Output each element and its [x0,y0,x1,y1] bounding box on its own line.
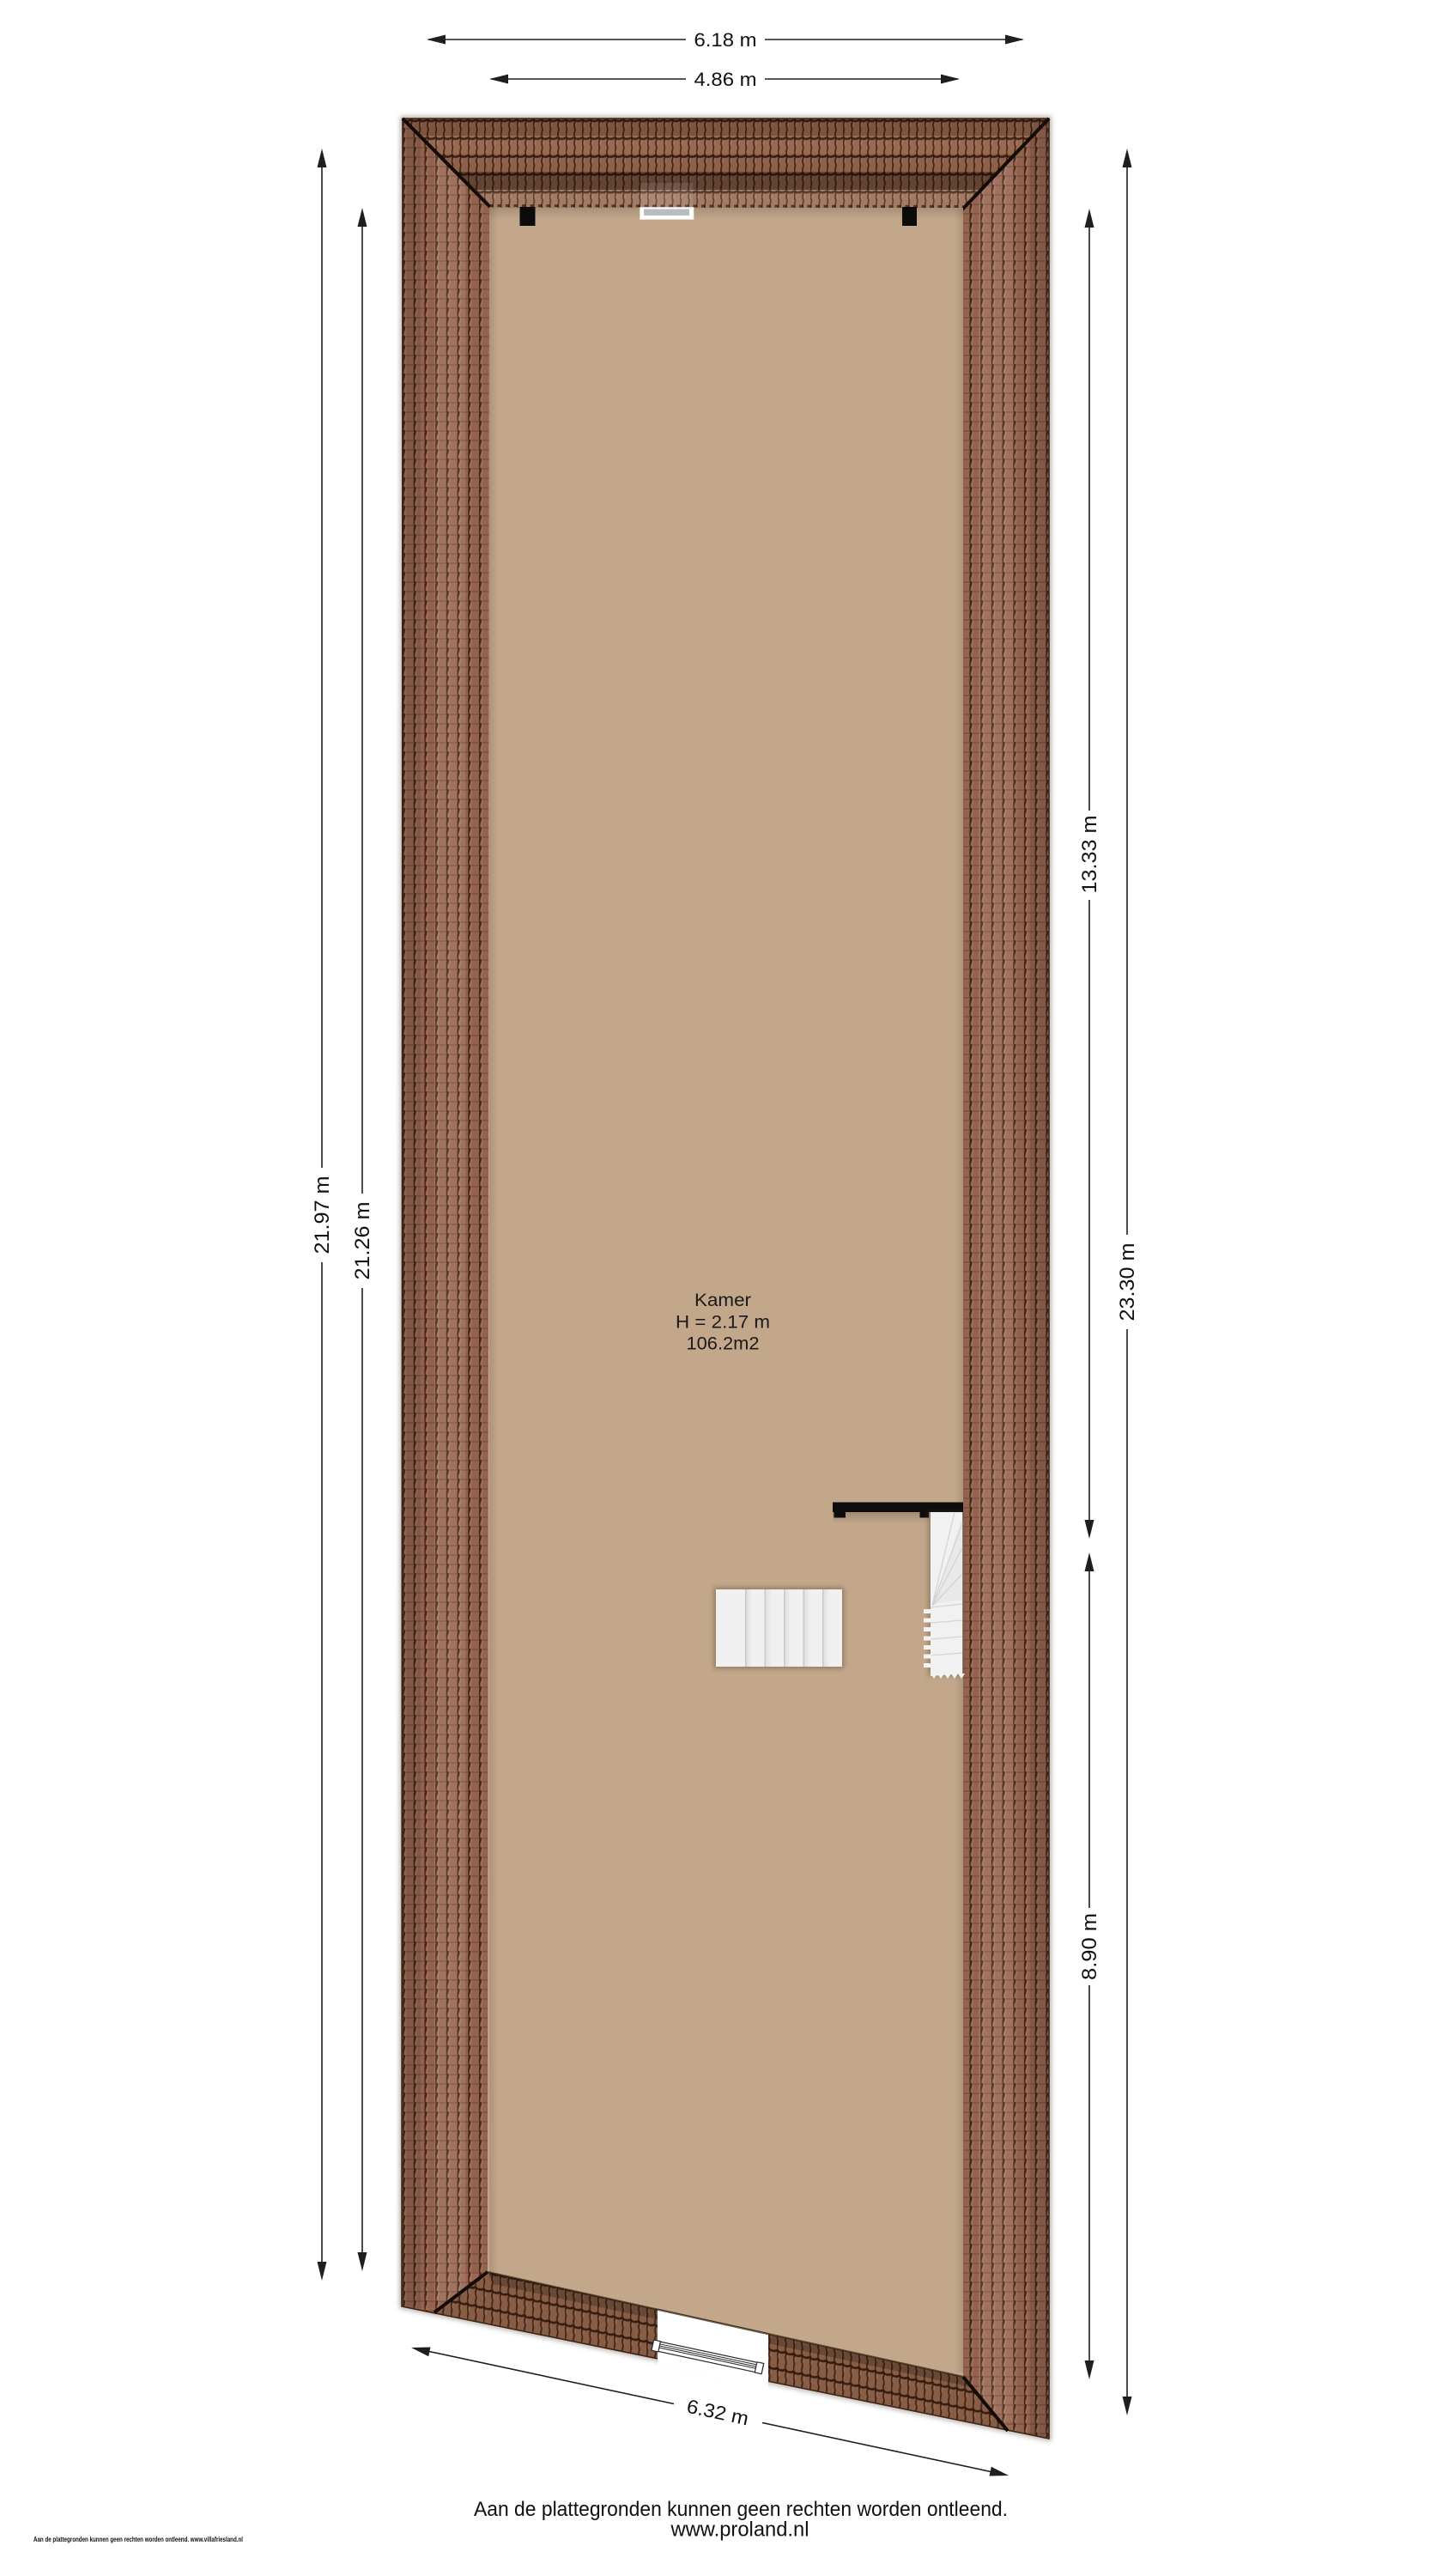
svg-text:21.26 m: 21.26 m [351,1202,374,1280]
svg-text:8.90 m: 8.90 m [1078,1913,1101,1980]
svg-text:13.33 m: 13.33 m [1078,816,1101,894]
svg-text:4.86 m: 4.86 m [694,69,757,90]
svg-text:106.2m2: 106.2m2 [687,1334,760,1354]
svg-text:Kamer: Kamer [694,1290,751,1310]
svg-text:23.30 m: 23.30 m [1116,1243,1139,1321]
svg-text:H = 2.17 m: H = 2.17 m [676,1312,770,1333]
svg-text:21.97 m: 21.97 m [311,1176,334,1255]
svg-text:www.proland.nl: www.proland.nl [670,2518,809,2542]
svg-text:6.18 m: 6.18 m [694,29,757,51]
svg-text:Aan de plattegronden kunnen ge: Aan de plattegronden kunnen geen rechten… [33,2535,243,2543]
